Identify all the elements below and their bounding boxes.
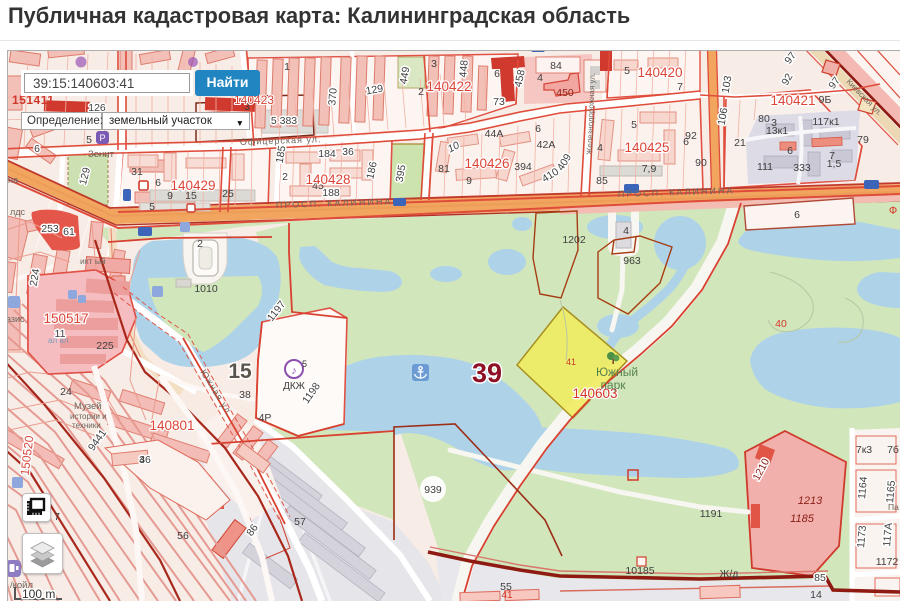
svg-text:1164: 1164 [856,476,870,500]
svg-text:Музей: Музей [74,401,102,412]
svg-text:5 383: 5 383 [271,115,297,127]
svg-text:1172: 1172 [876,556,899,568]
svg-text:Р: Р [99,133,105,143]
svg-text:4Р: 4Р [259,412,272,424]
svg-text:6: 6 [34,143,40,155]
svg-text:939: 939 [424,484,442,496]
svg-text:140801: 140801 [149,418,194,433]
svg-text:1213: 1213 [798,495,823,507]
svg-text:азис: азис [7,314,25,324]
svg-text:963: 963 [623,255,641,267]
svg-text:5: 5 [631,119,637,131]
svg-text:61: 61 [63,226,75,238]
svg-text:2: 2 [197,238,203,250]
svg-text:7,9: 7,9 [642,163,657,175]
svg-text:150517: 150517 [43,311,88,326]
svg-text:36: 36 [342,146,354,158]
svg-text:5: 5 [149,201,155,213]
svg-text:1,5: 1,5 [827,158,842,170]
svg-text:140426: 140426 [464,156,509,171]
svg-text:111: 111 [757,161,773,173]
svg-text:41: 41 [566,357,576,367]
svg-text:ал ал: ал ал [48,336,69,345]
svg-text:41: 41 [501,590,513,601]
svg-text:140421: 140421 [770,93,815,108]
svg-text:7: 7 [677,81,683,93]
svg-text:Ф: Ф [889,205,897,217]
svg-text:79: 79 [857,134,869,146]
svg-text:40: 40 [775,318,787,330]
svg-text:лдс: лдс [10,207,26,217]
svg-text:Па: Па [888,502,899,512]
svg-text:140429: 140429 [170,178,215,193]
svg-text:9Б: 9Б [819,94,832,106]
svg-text:1202: 1202 [562,234,586,246]
svg-text:100 m: 100 m [22,587,55,601]
svg-text:21: 21 [734,137,746,149]
svg-text:5: 5 [302,359,307,369]
svg-text:Южный: Южный [596,365,638,379]
svg-text:1173: 1173 [855,525,869,549]
svg-text:39: 39 [472,358,502,388]
svg-text:4: 4 [139,454,145,466]
svg-text:80: 80 [758,113,770,125]
svg-text:10185: 10185 [625,565,654,577]
svg-text:6: 6 [494,68,500,80]
svg-text:151411: 151411 [12,93,54,107]
svg-text:9: 9 [466,175,472,187]
svg-text:394: 394 [514,161,532,173]
svg-text:253: 253 [41,223,59,235]
svg-text:85: 85 [596,175,608,187]
svg-text:Зенит: Зенит [88,149,115,160]
svg-text:225: 225 [96,340,114,352]
svg-text:Ж/д: Ж/д [720,568,739,580]
svg-text:140425: 140425 [624,140,669,155]
svg-text:140422: 140422 [426,79,471,94]
svg-text:5: 5 [86,134,92,146]
svg-text:333: 333 [793,162,811,174]
svg-text:370: 370 [326,87,339,106]
svg-text:истории и: истории и [70,412,107,421]
svg-text:6: 6 [794,209,800,221]
svg-text:7: 7 [54,511,60,523]
svg-text:92: 92 [685,130,697,142]
svg-text:81: 81 [438,163,450,175]
svg-text:448: 448 [457,59,470,78]
svg-text:44А: 44А [485,128,504,140]
svg-text:117А: 117А [881,522,895,547]
svg-text:1010: 1010 [194,283,218,295]
svg-text:♪: ♪ [291,365,297,377]
svg-text:4: 4 [597,142,603,154]
svg-text:6: 6 [535,123,541,135]
svg-text:140420: 140420 [637,65,682,80]
svg-text:на: на [8,175,18,185]
svg-text:4: 4 [537,72,543,84]
svg-text:1191: 1191 [700,508,723,520]
svg-text:56: 56 [177,530,189,542]
svg-text:2: 2 [418,86,424,98]
svg-text:140428: 140428 [305,172,350,187]
svg-text:450: 450 [556,87,574,99]
svg-text:7б: 7б [887,444,899,456]
svg-text:7к3: 7к3 [856,444,872,456]
svg-text:1: 1 [284,61,290,73]
svg-text:парк: парк [600,378,626,392]
svg-text:14: 14 [810,589,822,601]
svg-text:1185: 1185 [790,513,815,525]
svg-text:24: 24 [60,386,72,398]
svg-text:73: 73 [493,96,505,108]
svg-text:ДКЖ: ДКЖ [283,381,306,392]
svg-text:57: 57 [294,516,306,528]
svg-text:6: 6 [787,145,793,157]
svg-text:84: 84 [550,60,562,72]
svg-text:2: 2 [282,171,288,183]
svg-text:117к1: 117к1 [812,116,839,128]
svg-text:техники: техники [72,421,101,430]
svg-text:6: 6 [155,177,161,189]
svg-text:икт ый: икт ый [80,256,106,266]
svg-text:31: 31 [131,166,143,178]
svg-text:13к1: 13к1 [766,125,788,137]
svg-text:5: 5 [624,65,630,77]
svg-text:15: 15 [228,360,252,383]
svg-text:42А: 42А [537,139,556,151]
svg-text:90: 90 [695,157,707,169]
svg-text:4: 4 [623,225,629,237]
svg-text:184: 184 [318,148,336,160]
svg-text:25: 25 [222,188,234,200]
svg-text:1165: 1165 [884,480,898,504]
svg-text:85: 85 [814,572,826,584]
svg-text:38: 38 [239,389,251,401]
svg-text:3: 3 [431,58,437,70]
